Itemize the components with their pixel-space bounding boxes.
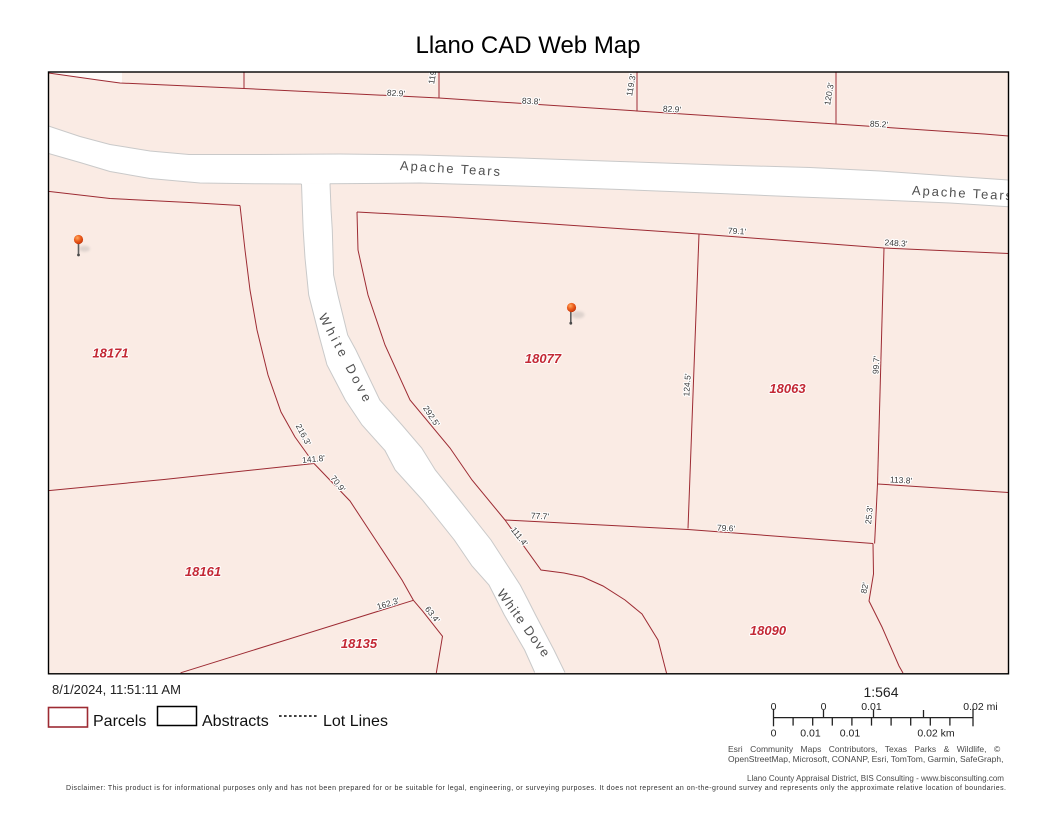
- svg-text:18161: 18161: [185, 564, 221, 579]
- svg-text:Llano County Appraisal Distric: Llano County Appraisal District, BIS Con…: [747, 773, 1004, 783]
- svg-text:79.1': 79.1': [728, 225, 747, 236]
- svg-text:Esri Community Maps Contributo: Esri Community Maps Contributors, Texas …: [728, 744, 1001, 754]
- svg-text:77.7': 77.7': [531, 511, 550, 522]
- svg-text:0.01: 0.01: [840, 728, 861, 740]
- svg-text:8/1/2024, 11:51:11 AM: 8/1/2024, 11:51:11 AM: [52, 682, 181, 697]
- svg-text:0.02 mi: 0.02 mi: [963, 701, 997, 713]
- svg-text:Abstracts: Abstracts: [202, 713, 269, 730]
- svg-text:Disclaimer: This product is fo: Disclaimer: This product is for informat…: [66, 785, 1006, 792]
- svg-text:OpenStreetMap, Microsoft, CONA: OpenStreetMap, Microsoft, CONANP, Esri, …: [728, 754, 1003, 764]
- svg-text:18171: 18171: [92, 346, 128, 361]
- svg-text:83.8': 83.8': [522, 95, 541, 106]
- svg-text:0: 0: [771, 728, 777, 740]
- svg-text:0.01: 0.01: [800, 728, 821, 740]
- svg-text:18077: 18077: [525, 351, 562, 366]
- svg-text:1:564: 1:564: [863, 684, 898, 700]
- svg-text:113.8': 113.8': [890, 474, 913, 485]
- svg-text:Lot Lines: Lot Lines: [323, 713, 388, 730]
- svg-text:79.6': 79.6': [717, 522, 736, 533]
- svg-text:248.3': 248.3': [884, 237, 908, 248]
- svg-text:124.5': 124.5': [681, 373, 693, 397]
- svg-text:Llano CAD Web Map: Llano CAD Web Map: [416, 32, 641, 59]
- svg-text:82.9': 82.9': [387, 87, 406, 98]
- svg-text:Parcels: Parcels: [93, 713, 146, 730]
- svg-text:18135: 18135: [341, 636, 378, 651]
- svg-text:0.02 km: 0.02 km: [917, 728, 955, 740]
- svg-text:0.01: 0.01: [861, 701, 882, 713]
- svg-text:18090: 18090: [750, 623, 787, 638]
- svg-text:85.2': 85.2': [870, 118, 889, 129]
- svg-text:18063: 18063: [769, 381, 806, 396]
- svg-text:25.3': 25.3': [863, 505, 875, 524]
- svg-text:82.9': 82.9': [663, 103, 682, 114]
- svg-text:99.7': 99.7': [870, 355, 881, 374]
